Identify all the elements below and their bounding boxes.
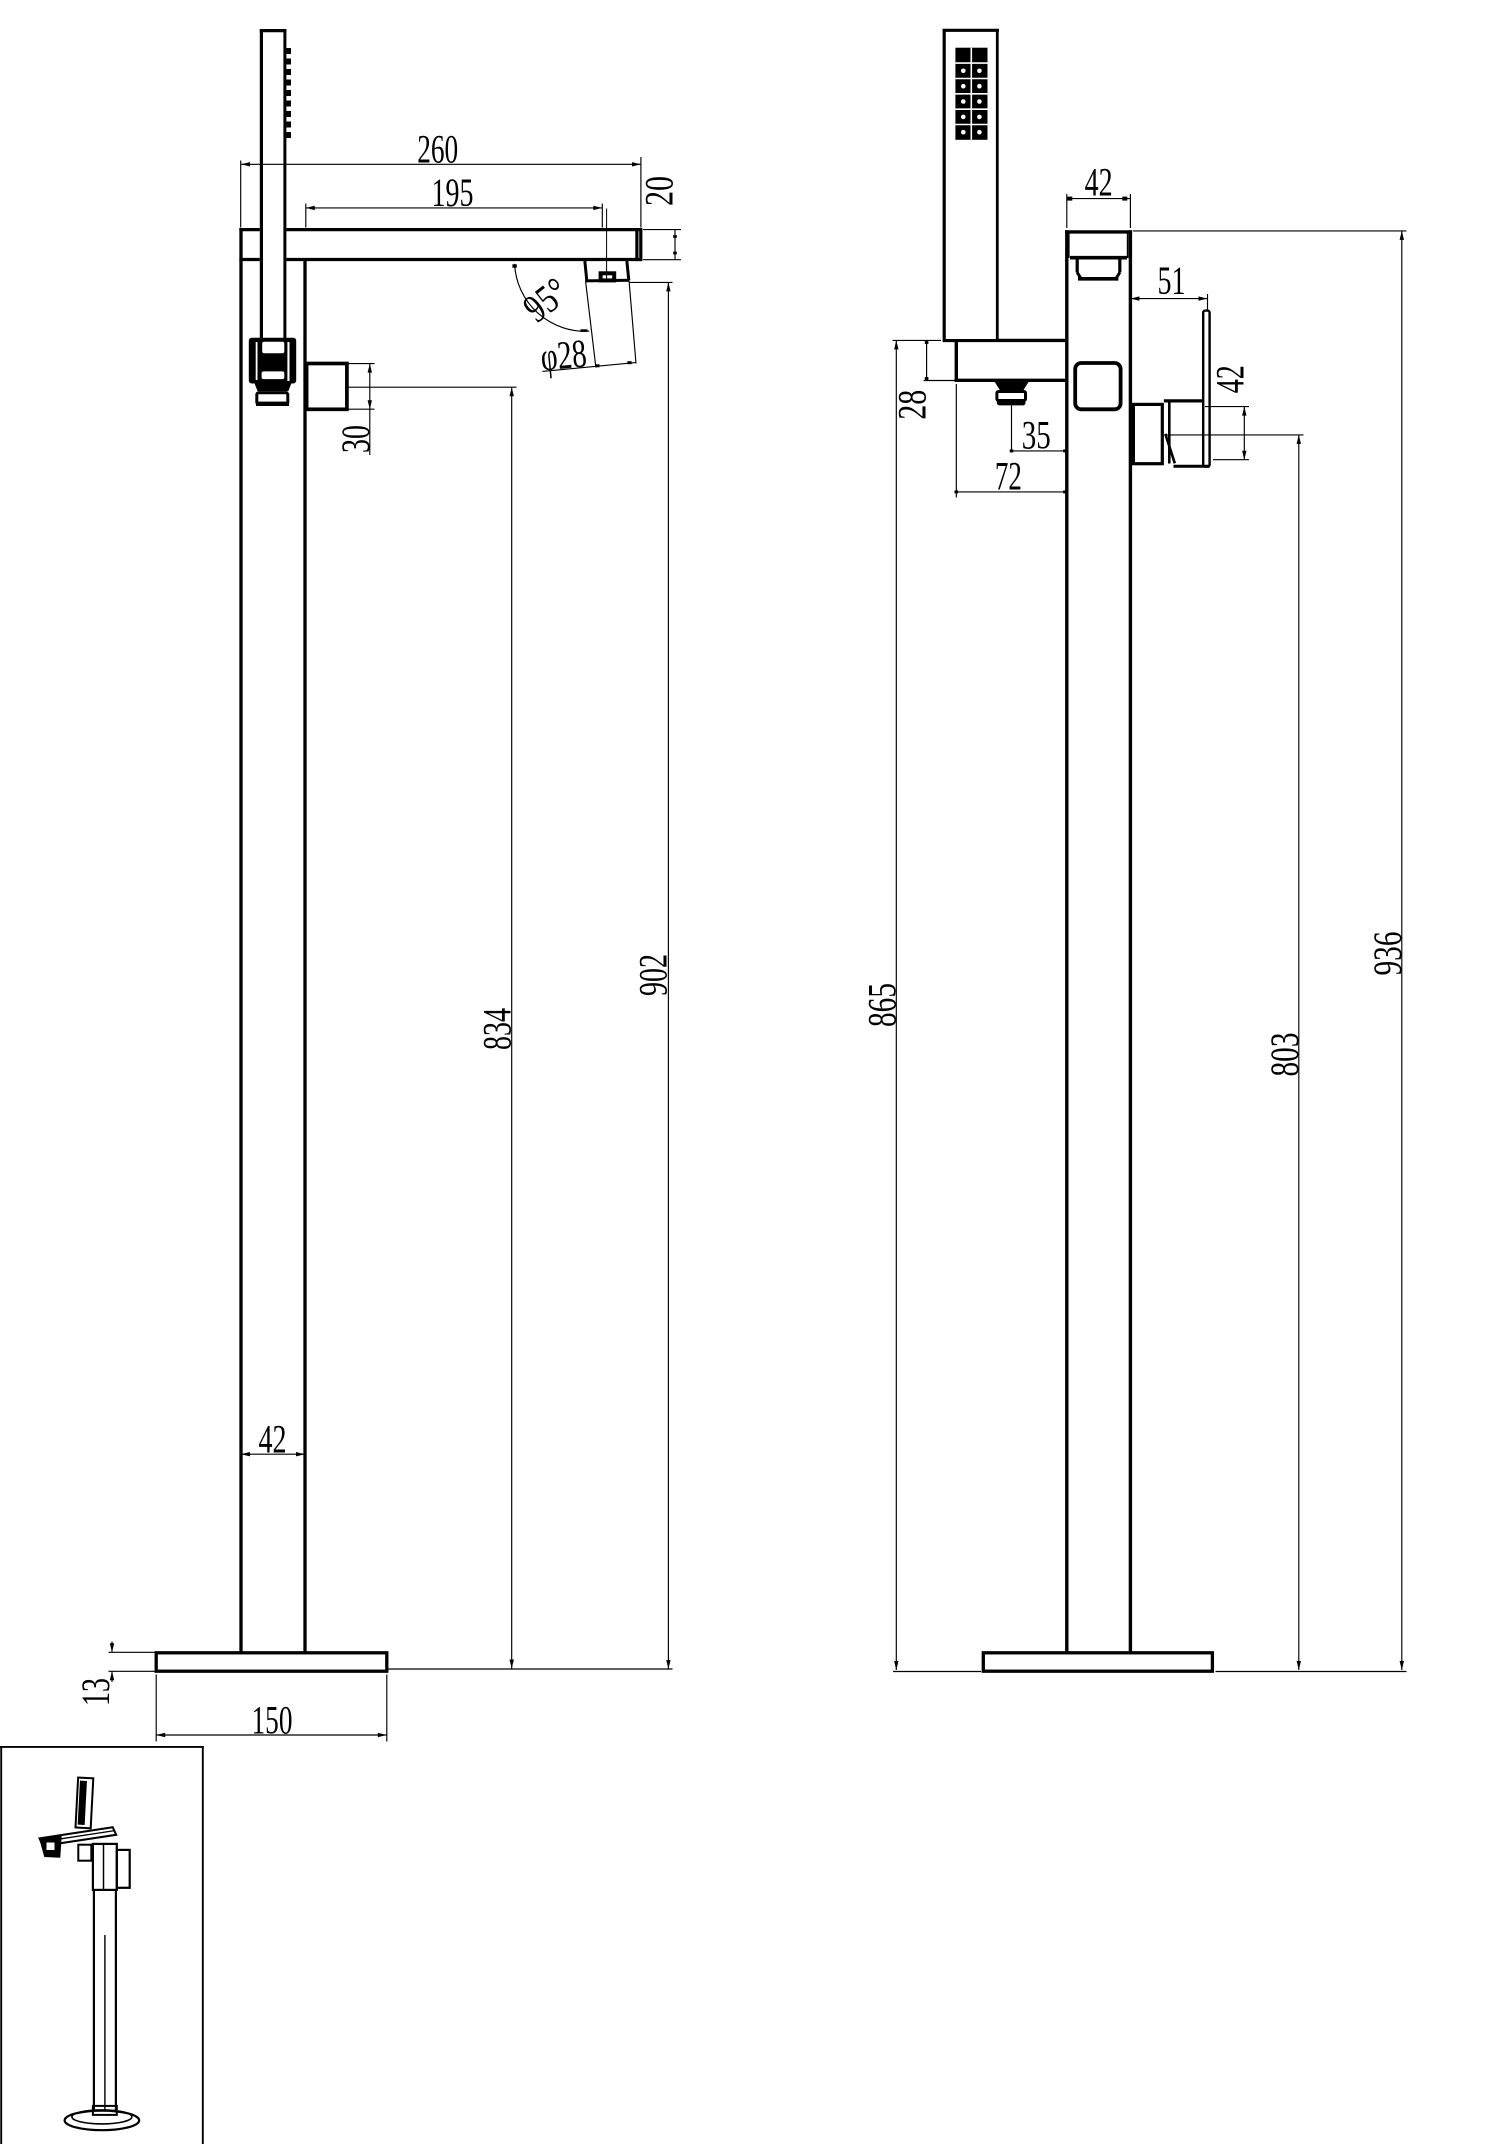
svg-text:260: 260 [417,127,458,172]
svg-text:834: 834 [475,1008,520,1050]
svg-text:72: 72 [995,454,1022,499]
svg-text:902: 902 [631,954,676,996]
svg-text:865: 865 [860,983,905,1027]
svg-text:42: 42 [1208,365,1253,393]
svg-text:150: 150 [252,1698,293,1743]
svg-text:20: 20 [637,176,682,206]
svg-text:φ28: φ28 [538,330,588,379]
svg-text:936: 936 [1365,932,1410,976]
svg-text:35: 35 [1022,413,1051,458]
svg-text:42: 42 [259,1417,287,1462]
svg-text:51: 51 [1158,258,1186,303]
svg-text:42: 42 [1085,160,1113,205]
svg-text:13: 13 [73,1678,118,1706]
svg-text:195: 195 [432,170,474,215]
svg-text:803: 803 [1262,1033,1307,1077]
svg-text:30: 30 [333,425,378,453]
